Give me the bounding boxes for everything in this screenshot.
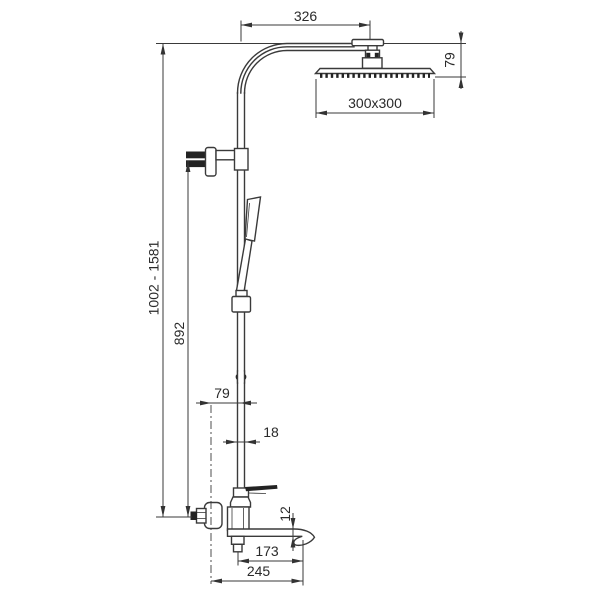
dim-79wall-arrow-right xyxy=(240,401,251,406)
dim-79wall-label: 79 xyxy=(214,385,230,401)
dim-height-arrow-bottom xyxy=(161,506,166,517)
dim-300-arrow-left xyxy=(316,111,327,116)
dim-head-drop: 79 xyxy=(384,31,466,89)
dim-245-label: 245 xyxy=(247,563,271,579)
dim-300-label: 300x300 xyxy=(348,95,402,111)
dim-892-label: 892 xyxy=(171,322,187,346)
dim-wall-offset: 79 xyxy=(196,385,257,584)
dim-12-label: 12 xyxy=(277,506,293,522)
dim-326-arrow-left xyxy=(241,23,252,28)
dim-overall-height: 1002 - 1581 xyxy=(146,44,288,518)
bottom-wall-screw-tip xyxy=(191,512,198,521)
dim-head-size: 300x300 xyxy=(316,79,434,118)
bottom-wall-flange xyxy=(205,503,223,529)
dim-892-arrow-bottom xyxy=(186,506,191,517)
hand-shower-ferrule xyxy=(236,291,247,297)
bottom-wall-screw xyxy=(197,509,207,524)
dim-79head-label: 79 xyxy=(442,52,458,68)
dim-height-label: 1002 - 1581 xyxy=(146,240,162,315)
mixer-lever-underline xyxy=(248,493,266,494)
mixer-body xyxy=(228,507,250,531)
dim-18-arrow-left xyxy=(226,440,237,445)
hand-shower-head xyxy=(245,197,261,241)
head-connector-nut-dark-right xyxy=(375,53,379,58)
dim-79wall-arrow-left xyxy=(200,401,211,406)
top-bracket-screw-upper xyxy=(186,152,207,159)
drawing-canvas: 326 79 300x300 1002 - 1581 xyxy=(0,0,600,600)
dim-overall-depth: 245 xyxy=(211,563,303,583)
spout-outlet-upper xyxy=(232,536,245,544)
rain-shower-head xyxy=(316,69,435,74)
dim-300-arrow-right xyxy=(423,111,434,116)
dim-79head-arrow-top xyxy=(459,33,464,44)
dim-173-arrow-right xyxy=(292,559,303,564)
mixer-lever-handle xyxy=(245,485,278,491)
dim-height-arrow-top xyxy=(161,44,166,55)
top-bracket-screw-lower xyxy=(186,160,207,167)
head-connector-base xyxy=(363,58,383,69)
arm-end-plate xyxy=(352,40,384,46)
dim-326-label: 326 xyxy=(294,8,318,24)
dim-245-arrow-right xyxy=(292,579,303,584)
top-bracket-wall-flange xyxy=(206,148,217,177)
dim-top-width: 326 xyxy=(241,8,370,42)
dim-riser-height: 892 xyxy=(171,161,190,517)
head-connector-nut-dark-left xyxy=(366,53,370,58)
spout-outlet-lower xyxy=(234,544,243,552)
shower-structure xyxy=(186,40,435,552)
dimension-annotations: 326 79 300x300 1002 - 1581 xyxy=(146,8,467,586)
mixer-cartridge-dome xyxy=(231,497,251,507)
top-bracket-pipe-clamp xyxy=(235,149,249,171)
dim-245-arrow-left xyxy=(211,579,222,584)
shower-column-technical-drawing: 326 79 300x300 1002 - 1581 xyxy=(0,0,600,600)
pipe-union-joint-core xyxy=(238,372,244,383)
slider-holder xyxy=(232,297,251,313)
dim-pipe-diameter: 18 xyxy=(223,424,279,444)
hand-shower-handle xyxy=(237,239,253,292)
dim-18-arrow-right xyxy=(245,440,256,445)
dim-173-label: 173 xyxy=(255,543,279,559)
dim-18-label: 18 xyxy=(263,424,279,440)
dim-79head-arrow-bottom xyxy=(459,77,464,88)
dim-326-arrow-right xyxy=(359,23,370,28)
